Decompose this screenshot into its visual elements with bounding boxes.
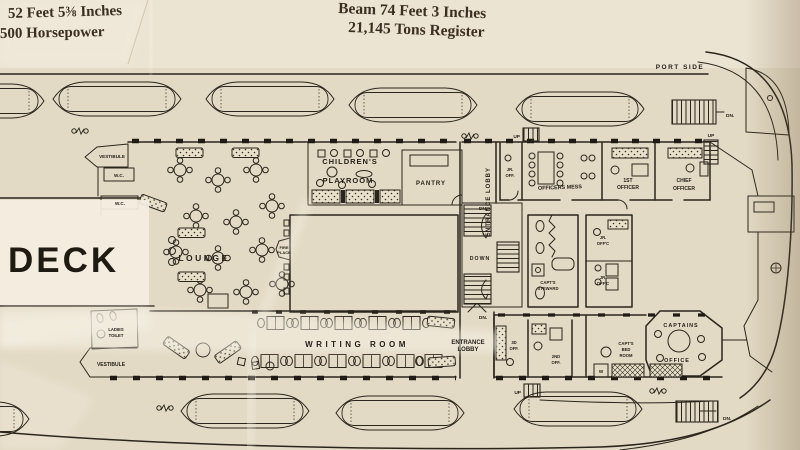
wc-top-label: W.C. — [114, 173, 124, 178]
vestibule-bottom-label: VESTIBULE — [97, 362, 126, 368]
davit-icon — [72, 128, 88, 134]
lounge-label: LOUNGE — [178, 253, 229, 263]
stairs-entrance-c — [464, 274, 491, 304]
stairs-small-bottom — [524, 384, 540, 397]
spec-horsepower: 500 Horsepower — [0, 24, 105, 42]
wc-mid-label: W.C. — [115, 201, 125, 206]
officers-mess-label: OFFICERS MESS — [538, 184, 583, 192]
jr-officer-cabin-bottom-label2: OFF'C — [597, 281, 609, 286]
ladies-toilet-label: LADIES — [108, 327, 124, 332]
stairs-top-right — [672, 100, 716, 124]
up-label-top-center: UP — [513, 134, 520, 140]
capts-bedroom-label3: ROOM — [619, 353, 633, 358]
first-officer-label: 1ST — [623, 178, 632, 184]
scanned-deck-plan-page: 52 Feet 5⅜ Inches 500 Horsepower Beam 74… — [0, 0, 800, 450]
lifeboat — [181, 394, 309, 428]
entrance-lobby-label2: LOBBY — [458, 347, 479, 353]
capts-bedroom-label2: BED — [622, 347, 631, 352]
fireplace-label2: PLACE — [277, 250, 291, 255]
capts-steward-label2: STEWARD — [538, 286, 559, 291]
captains-office-label: OFFICE — [664, 358, 690, 364]
lifeboat — [0, 84, 44, 118]
spec-length: 52 Feet 5⅜ Inches — [8, 3, 123, 22]
stairs-entrance-b — [497, 242, 519, 272]
third-officer-label2: OFF. — [509, 346, 518, 351]
wardrobe-label: W — [599, 369, 604, 374]
entrance-lobby-label: ENTRANCE — [451, 340, 484, 346]
deck-plan-drawing: 52 Feet 5⅜ Inches 500 Horsepower Beam 74… — [0, 0, 800, 450]
dn-label-bottom-right: DN. — [723, 416, 731, 422]
chief-officer-label: CHIEF — [677, 178, 692, 184]
capts-bedroom-label: CAPT'S — [618, 341, 633, 346]
jr-officer-label2: OFF. — [505, 173, 514, 178]
dn-label-entrance-top: DN. — [479, 206, 487, 212]
lifeboat — [53, 82, 181, 116]
jr-officer-cabin-bottom-label: JR. — [600, 275, 607, 280]
chief-officer-label2: OFFICER — [673, 186, 695, 192]
childrens-playroom-label2: PLAYROOM — [323, 176, 374, 185]
second-officer-label: 2ND — [552, 354, 560, 359]
dn-label-entrance-bottom: DN. — [479, 315, 487, 321]
davit-icon — [157, 405, 173, 411]
davit-icon — [462, 133, 478, 139]
jr-officer-label: JR. — [507, 167, 514, 172]
stairs-up-forward — [704, 140, 718, 164]
dn-label-top-right: DN. — [726, 113, 734, 119]
vestibule-top-label: VESTIBULE — [99, 154, 125, 159]
lifeboat — [349, 88, 477, 122]
lifeboat — [336, 396, 464, 430]
jr-officer-cabin-top-label: JR. — [600, 235, 607, 240]
lifeboat — [206, 82, 334, 116]
stairs-small-top — [523, 128, 539, 141]
up-label-forward: UP — [708, 133, 715, 139]
captains-label: CAPTAINS — [663, 323, 698, 329]
writing-room-label: WRITING ROOM — [305, 340, 409, 349]
capts-steward-label: CAPT'S — [540, 280, 555, 285]
first-officer-label2: OFFICER — [617, 185, 639, 191]
deck-name-label: DECK — [8, 241, 119, 280]
port-side-label: PORT SIDE — [656, 64, 705, 71]
ladies-toilet-label2: TOILET — [109, 333, 124, 338]
pantry-label: PANTRY — [416, 181, 446, 187]
entrance-lobby-vertical-label: ENTRANCE LOBBY — [486, 167, 492, 237]
down-label: DOWN — [470, 256, 490, 262]
lifeboat — [516, 92, 644, 126]
davit-icon — [650, 388, 666, 394]
second-officer-label2: OFF. — [551, 360, 560, 365]
up-label-bottom: UP — [514, 390, 521, 396]
jr-officer-cabin-top-label2: OFF'C — [597, 241, 609, 246]
childrens-playroom-label: CHILDREN'S — [322, 157, 378, 166]
third-officer-label: 3D — [511, 340, 516, 345]
